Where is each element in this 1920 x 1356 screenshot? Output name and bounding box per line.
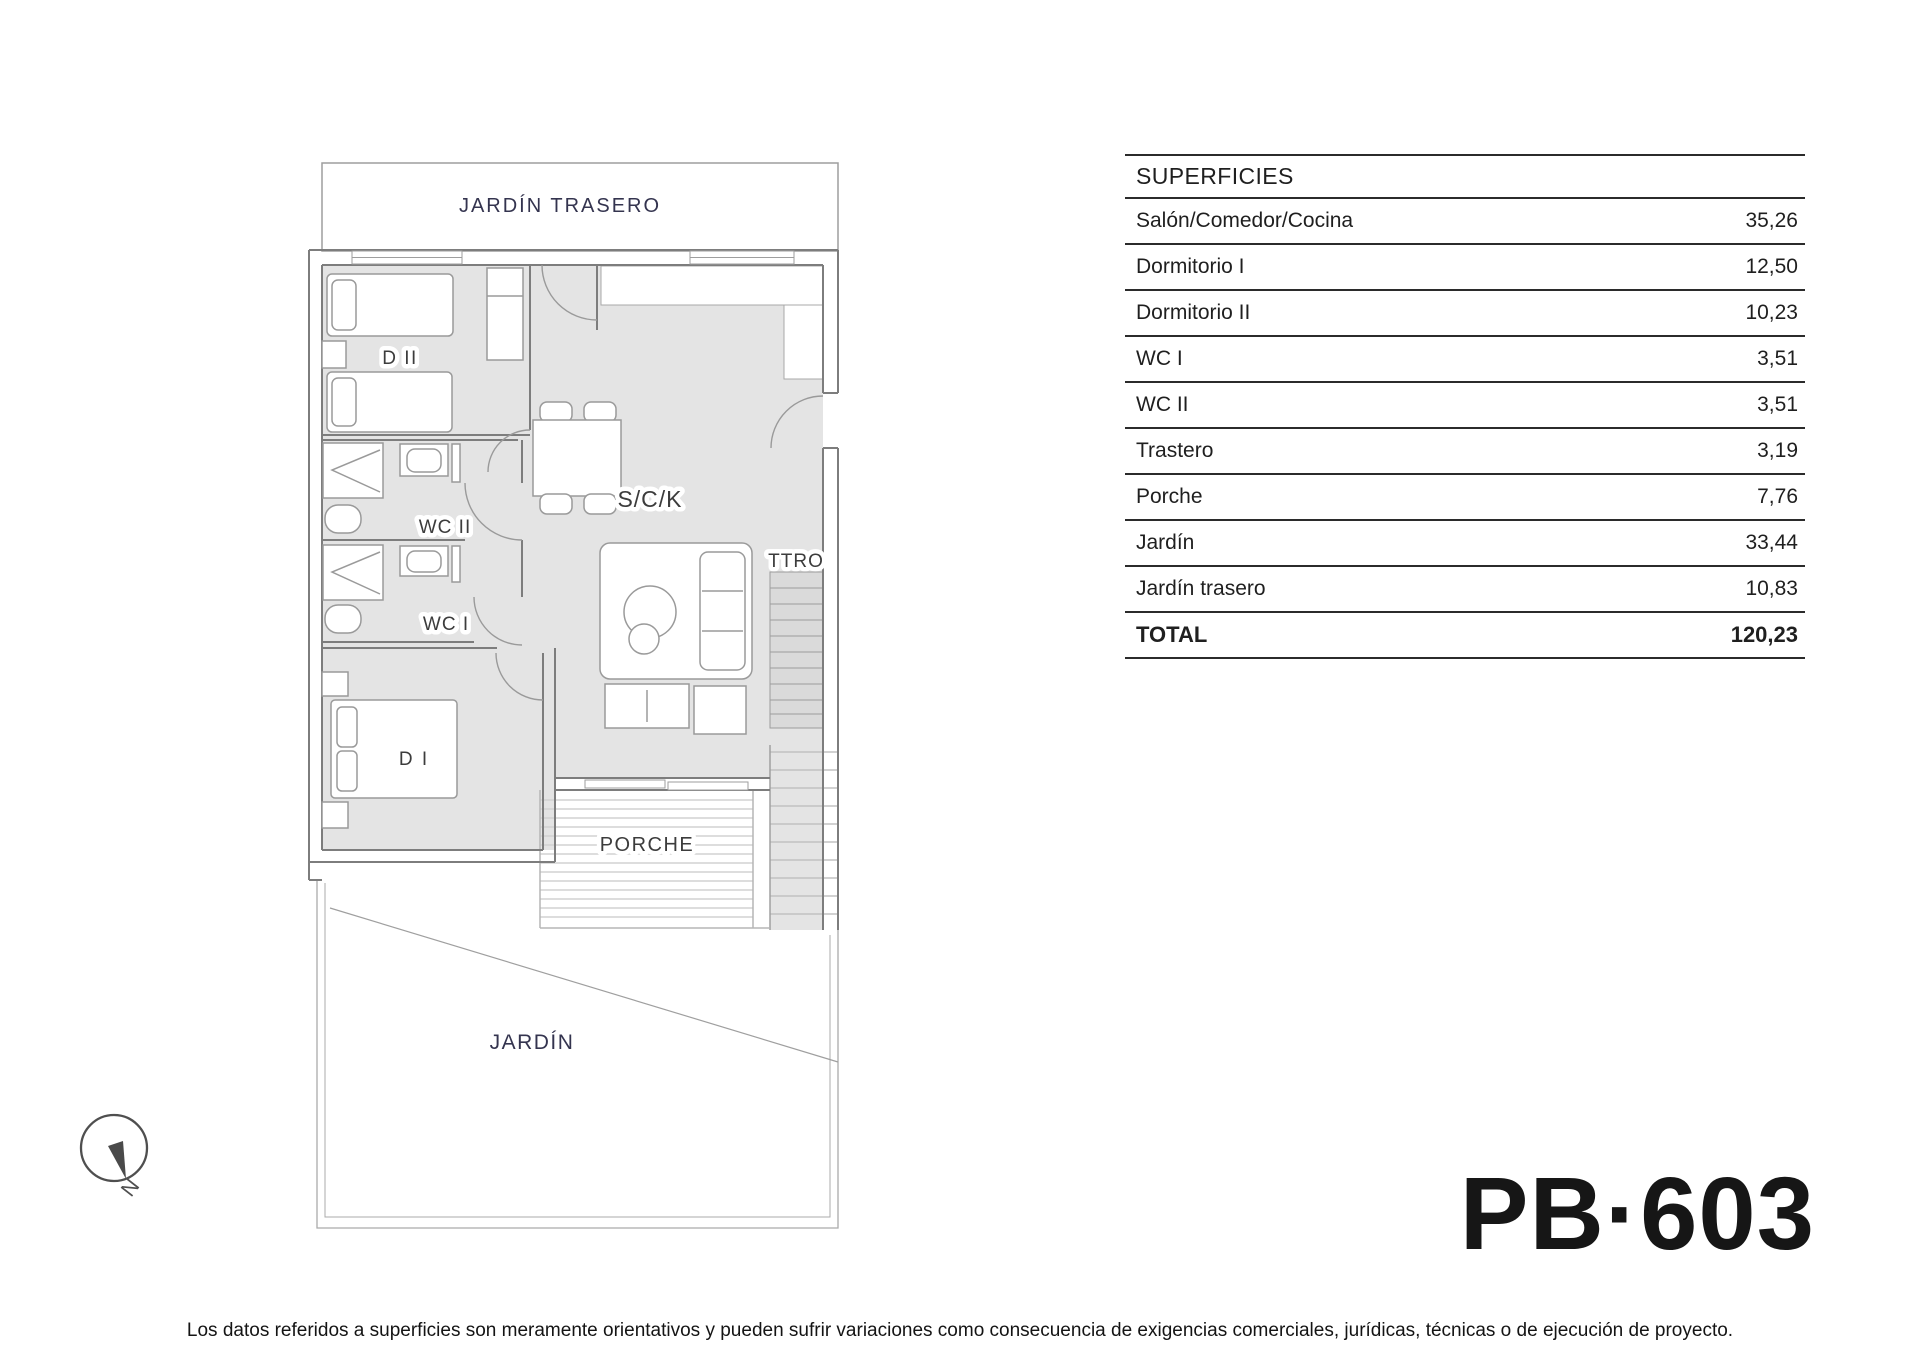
label-dormitorio-1: D I <box>399 749 429 770</box>
total-label: TOTAL <box>1136 622 1207 648</box>
porch-area <box>540 790 770 928</box>
label-jardin-trasero: JARDÍN TRASERO <box>459 194 661 217</box>
row-label: Salón/Comedor/Cocina <box>1136 209 1353 233</box>
table-row: Salón/Comedor/Cocina 35,26 <box>1125 199 1805 245</box>
row-label: Dormitorio I <box>1136 255 1245 279</box>
surfaces-table: SUPERFICIES Salón/Comedor/Cocina 35,26 D… <box>1125 154 1805 659</box>
north-compass-icon: N <box>81 1115 147 1201</box>
row-value: 3,19 <box>1757 439 1798 463</box>
label-jardin: JARDÍN <box>490 1031 575 1054</box>
table-row: WC I 3,51 <box>1125 337 1805 383</box>
surfaces-rows: Salón/Comedor/Cocina 35,26 Dormitorio I … <box>1125 199 1805 613</box>
plan-sheet: JARDÍN TRASERO D II WC II WC I D I S/C/K… <box>0 0 1920 1356</box>
table-row: Dormitorio II 10,23 <box>1125 291 1805 337</box>
table-row: Trastero 3,19 <box>1125 429 1805 475</box>
row-value: 3,51 <box>1757 347 1798 371</box>
row-label: Porche <box>1136 485 1203 509</box>
row-value: 12,50 <box>1745 255 1798 279</box>
table-row: Dormitorio I 12,50 <box>1125 245 1805 291</box>
row-value: 33,44 <box>1745 531 1798 555</box>
row-label: Dormitorio II <box>1136 301 1250 325</box>
row-label: Trastero <box>1136 439 1213 463</box>
row-value: 35,26 <box>1745 209 1798 233</box>
jardin-boundary <box>317 880 838 1228</box>
table-row: Jardín 33,44 <box>1125 521 1805 567</box>
row-value: 10,83 <box>1745 577 1798 601</box>
row-label: Jardín <box>1136 531 1194 555</box>
label-wc-2: WC II <box>419 517 472 538</box>
row-value: 10,23 <box>1745 301 1798 325</box>
table-row: Porche 7,76 <box>1125 475 1805 521</box>
label-porche: PORCHE <box>600 834 695 856</box>
row-label: Jardín trasero <box>1136 577 1266 601</box>
table-row: Jardín trasero 10,83 <box>1125 567 1805 613</box>
label-trastero: TTRO <box>768 551 824 572</box>
table-row: WC II 3,51 <box>1125 383 1805 429</box>
surfaces-total-row: TOTAL 120,23 <box>1125 613 1805 659</box>
trastero-stairs <box>770 572 823 728</box>
floor-plan: JARDÍN TRASERO D II WC II WC I D I S/C/K… <box>0 0 960 1300</box>
row-value: 7,76 <box>1757 485 1798 509</box>
row-label: WC I <box>1136 347 1183 371</box>
label-dormitorio-2: D II <box>382 348 418 369</box>
row-value: 3,51 <box>1757 393 1798 417</box>
north-label: N <box>117 1175 144 1201</box>
label-salon: S/C/K <box>617 486 682 512</box>
row-label: WC II <box>1136 393 1189 417</box>
label-wc-1: WC I <box>423 614 469 635</box>
plan-code: PB·603 <box>1455 1162 1815 1265</box>
total-value: 120,23 <box>1731 622 1798 648</box>
disclaimer-text: Los datos referidos a superficies son me… <box>0 1320 1920 1342</box>
surfaces-header: SUPERFICIES <box>1125 156 1805 199</box>
